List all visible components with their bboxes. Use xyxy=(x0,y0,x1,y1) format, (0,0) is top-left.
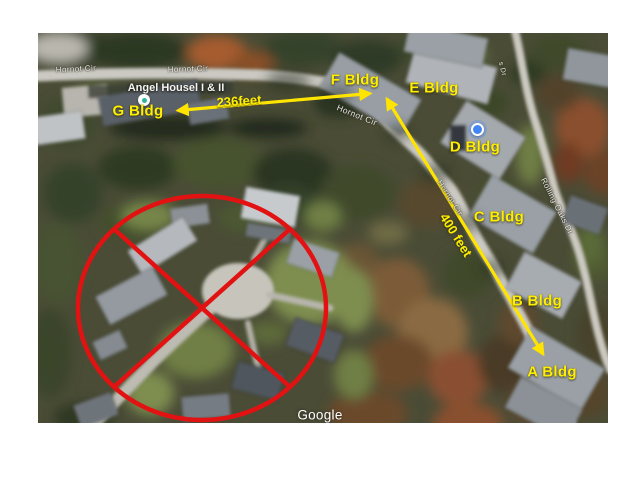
no-entry-marker xyxy=(78,196,326,420)
distance-arrow-g-f xyxy=(178,94,370,111)
annotation-overlay xyxy=(38,33,608,423)
satellite-map-image: Hornot Cir Hornot Cir Hornot Cir Hornot … xyxy=(38,33,608,423)
place-marker-dot-icon xyxy=(142,98,147,103)
distance-arrow-f-a xyxy=(387,99,543,354)
place-marker-icon xyxy=(138,94,150,106)
slide-canvas: Hornot Cir Hornot Cir Hornot Cir Hornot … xyxy=(0,0,640,480)
location-dot-icon xyxy=(471,123,484,136)
